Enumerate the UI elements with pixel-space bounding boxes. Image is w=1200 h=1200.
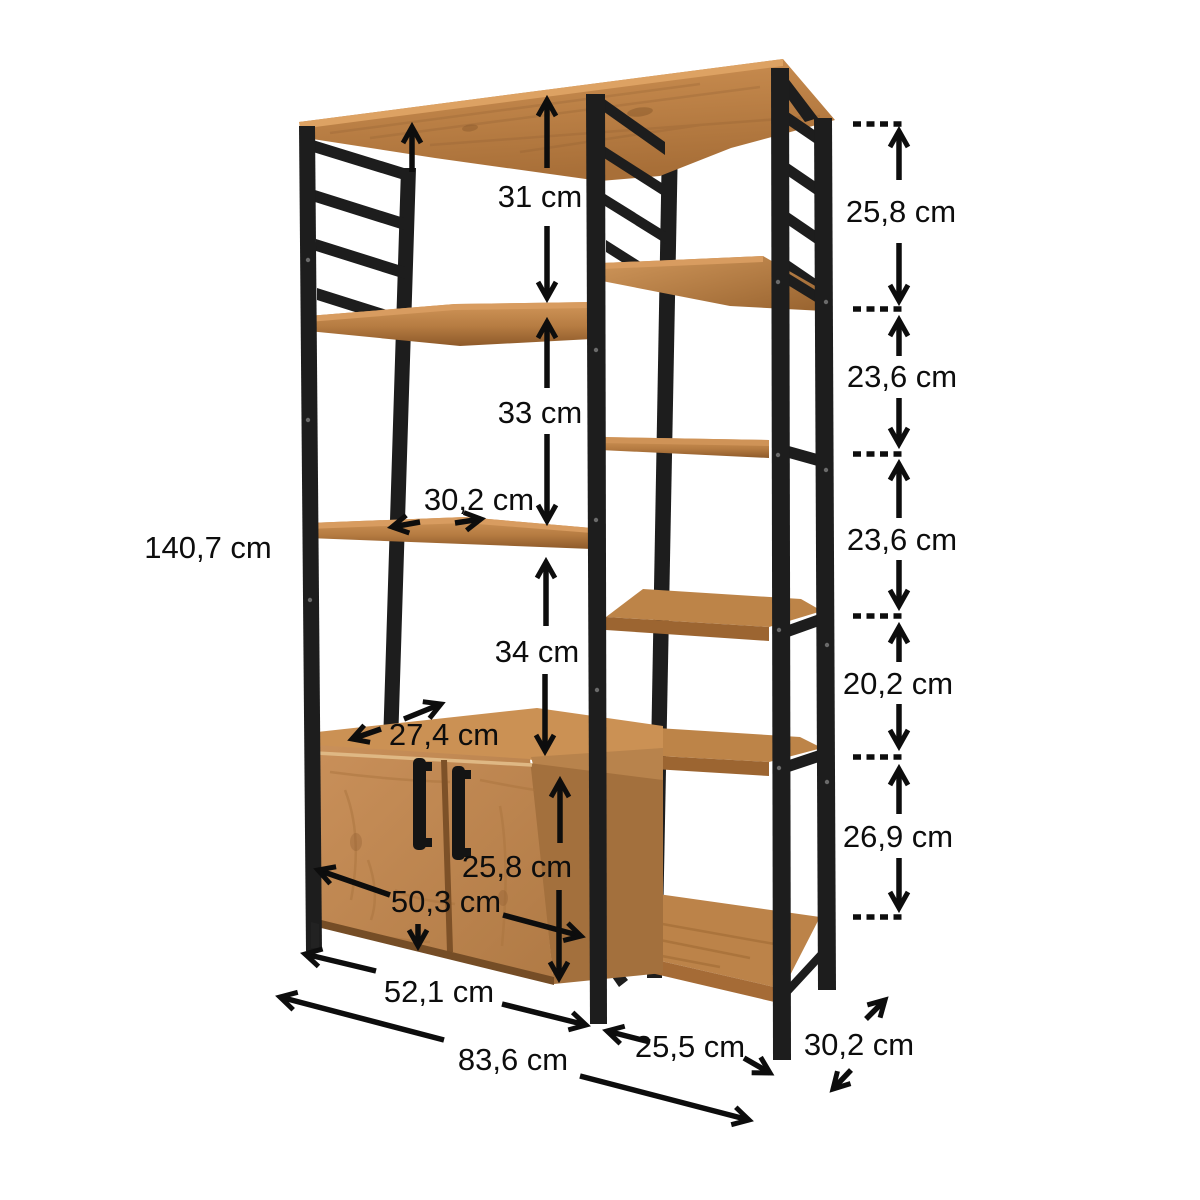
svg-text:140,7 cm: 140,7 cm xyxy=(144,530,272,565)
svg-text:83,6 cm: 83,6 cm xyxy=(458,1042,568,1077)
svg-text:26,9 cm: 26,9 cm xyxy=(843,819,953,854)
svg-text:52,1 cm: 52,1 cm xyxy=(384,974,494,1009)
svg-text:30,2 cm: 30,2 cm xyxy=(424,482,534,517)
svg-text:34 cm: 34 cm xyxy=(495,634,579,669)
svg-text:33 cm: 33 cm xyxy=(498,395,582,430)
svg-text:25,8 cm: 25,8 cm xyxy=(462,849,572,884)
svg-text:23,6 cm: 23,6 cm xyxy=(847,359,957,394)
svg-text:31 cm: 31 cm xyxy=(498,179,582,214)
svg-text:27,4 cm: 27,4 cm xyxy=(389,717,499,752)
svg-text:20,2 cm: 20,2 cm xyxy=(843,666,953,701)
svg-text:50,3 cm: 50,3 cm xyxy=(391,884,501,919)
svg-text:23,6 cm: 23,6 cm xyxy=(847,522,957,557)
svg-text:30,2 cm: 30,2 cm xyxy=(804,1027,914,1062)
svg-text:25,5 cm: 25,5 cm xyxy=(635,1029,745,1064)
svg-text:25,8 cm: 25,8 cm xyxy=(846,194,956,229)
